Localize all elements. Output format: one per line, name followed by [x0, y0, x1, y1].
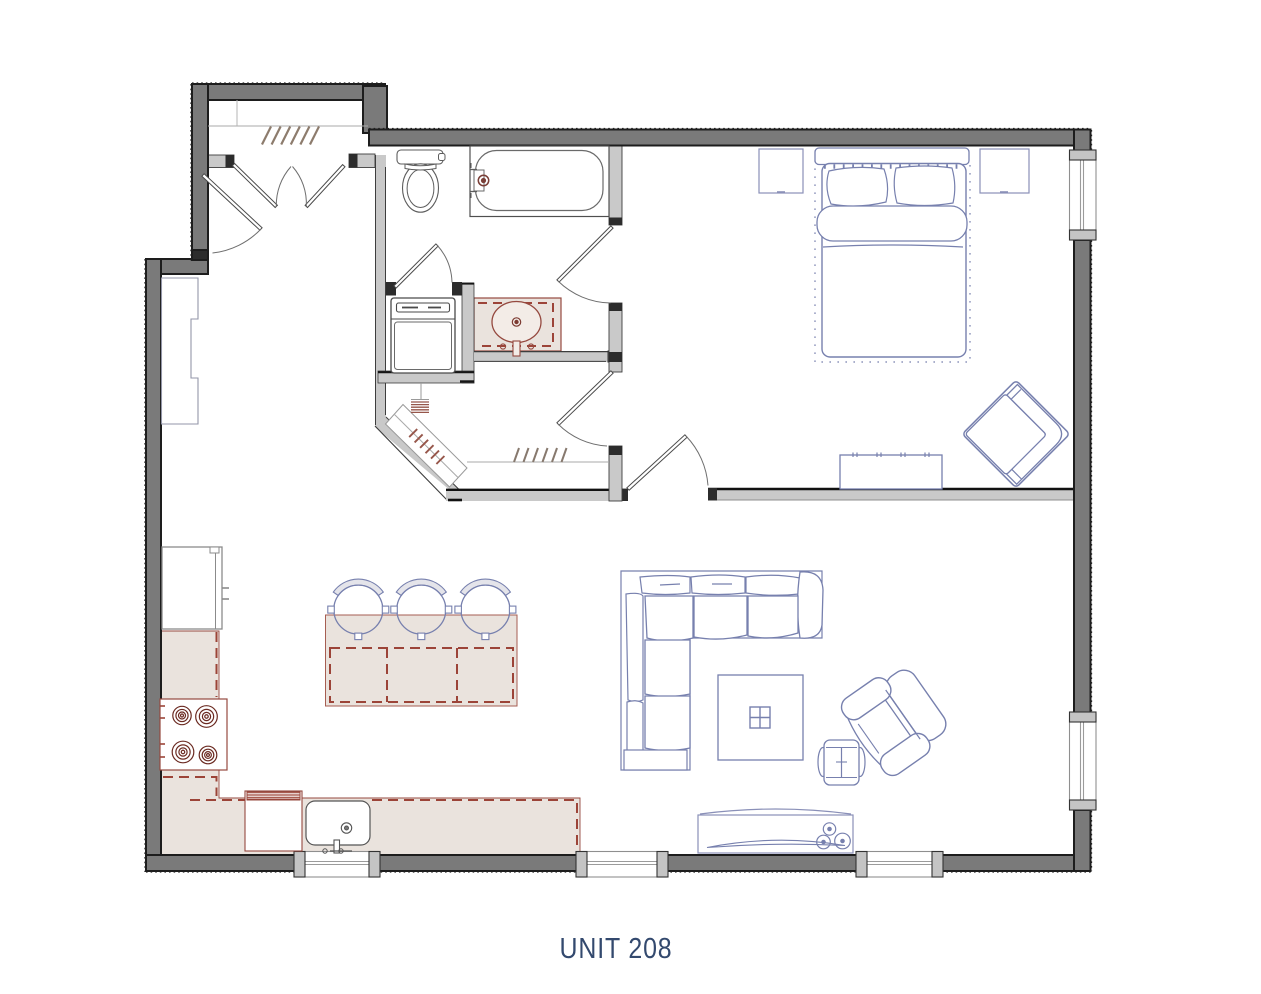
svg-text:UNIT 208: UNIT 208	[560, 933, 673, 965]
